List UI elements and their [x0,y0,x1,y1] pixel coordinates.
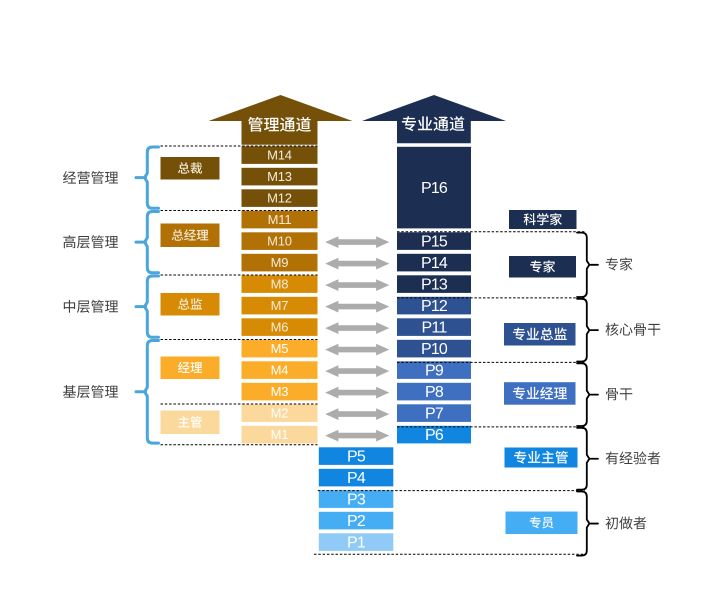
svg-text:P13: P13 [421,277,448,294]
svg-text:M7: M7 [271,298,289,313]
svg-text:M2: M2 [271,406,289,421]
svg-text:M9: M9 [271,255,289,270]
svg-text:M12: M12 [267,191,292,206]
svg-text:P15: P15 [421,234,448,251]
svg-text:P4: P4 [347,470,366,487]
svg-text:M10: M10 [267,234,292,249]
svg-text:P3: P3 [347,492,366,509]
svg-text:M13: M13 [267,169,292,184]
svg-text:M8: M8 [271,277,289,292]
svg-text:P9: P9 [425,363,444,380]
svg-text:P1: P1 [347,535,366,552]
svg-text:M5: M5 [271,341,289,356]
svg-text:P2: P2 [347,513,366,530]
svg-text:M1: M1 [271,427,289,442]
svg-text:P14: P14 [421,255,448,272]
svg-text:P11: P11 [422,320,448,337]
svg-text:P16: P16 [421,180,448,197]
svg-text:M11: M11 [268,212,292,227]
svg-text:P5: P5 [347,449,366,466]
svg-text:M3: M3 [271,384,289,399]
svg-text:M6: M6 [271,320,289,335]
svg-text:P12: P12 [421,298,448,315]
svg-text:P7: P7 [425,406,444,423]
svg-text:P6: P6 [425,427,444,444]
svg-text:M4: M4 [271,363,289,378]
svg-text:P8: P8 [425,384,444,401]
svg-text:P10: P10 [421,341,448,358]
svg-text:M14: M14 [267,148,292,163]
